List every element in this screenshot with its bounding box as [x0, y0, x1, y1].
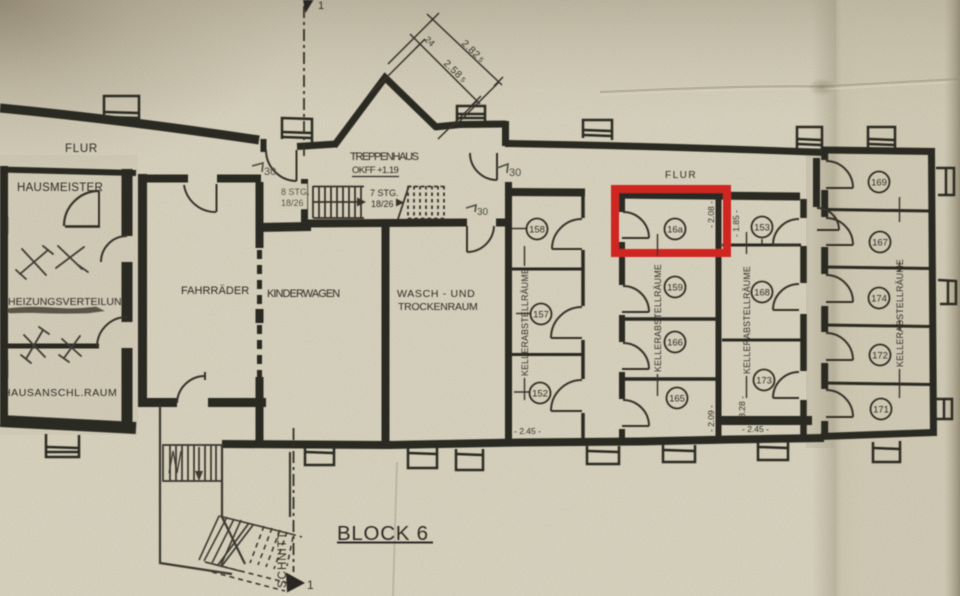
svg-text:158: 158 [529, 225, 545, 236]
svg-text:- 1.85 -: - 1.85 - [731, 210, 741, 237]
svg-text:152: 152 [532, 389, 548, 400]
svg-text:30: 30 [477, 207, 489, 218]
svg-text:18/26: 18/26 [281, 198, 304, 208]
svg-text:- 2.45 -: - 2.45 - [742, 424, 769, 434]
svg-text:KELLERABSTELLRÄUME: KELLERABSTELLRÄUME [742, 266, 752, 374]
svg-text:KELLERABSTELLRÄUME: KELLERABSTELLRÄUME [895, 259, 905, 367]
svg-text:- 2.09 -: - 2.09 - [706, 405, 716, 432]
svg-text:HAUSANSCHL.RAUM: HAUSANSCHL.RAUM [3, 387, 117, 399]
svg-text:FLUR: FLUR [665, 170, 697, 181]
svg-text:169: 169 [871, 178, 887, 189]
svg-text:174: 174 [871, 294, 887, 305]
svg-text:167: 167 [872, 238, 888, 249]
svg-text:WASCH - UND: WASCH - UND [397, 288, 475, 300]
svg-text:173: 173 [756, 376, 772, 387]
svg-text:HEIZUNGSVERTEILUNG: HEIZUNGSVERTEILUNG [8, 296, 130, 308]
svg-text:FAHRRÄDER: FAHRRÄDER [181, 285, 250, 297]
svg-text:KELLERABSTELLRÄUME: KELLERABSTELLRÄUME [520, 268, 530, 376]
svg-text:OKFF +1.19: OKFF +1.19 [352, 165, 399, 176]
svg-text:KELLERABSTELLRÄUME: KELLERABSTELLRÄUME [653, 264, 663, 372]
svg-text:166: 166 [667, 338, 683, 349]
svg-text:159: 159 [667, 283, 683, 294]
svg-text:- 2.08 -: - 2.08 - [706, 201, 716, 228]
svg-text:SCHNITT: SCHNITT [277, 531, 289, 588]
svg-text:30: 30 [509, 167, 521, 179]
svg-text:30: 30 [264, 166, 276, 178]
svg-text:157: 157 [533, 310, 549, 321]
svg-text:7 STG.: 7 STG. [370, 188, 399, 198]
svg-text:1: 1 [307, 578, 314, 592]
svg-text:FLUR: FLUR [65, 143, 99, 155]
svg-text:172: 172 [872, 351, 888, 362]
svg-text:8 STG.: 8 STG. [281, 187, 310, 197]
svg-text:KINDERWAGEN: KINDERWAGEN [267, 288, 341, 300]
svg-text:- 2.45 -: - 2.45 - [514, 426, 541, 436]
svg-text:- 3.28 -: - 3.28 - [737, 396, 747, 423]
svg-text:HAUSMEISTER: HAUSMEISTER [17, 182, 104, 194]
svg-text:171: 171 [873, 405, 889, 416]
svg-text:16a: 16a [667, 225, 684, 236]
svg-text:18/26: 18/26 [371, 199, 394, 209]
svg-text:165: 165 [669, 394, 685, 405]
svg-text:TREPPENHAUS: TREPPENHAUS [350, 151, 420, 163]
svg-text:1: 1 [318, 0, 324, 12]
svg-text:TROCKENRAUM: TROCKENRAUM [398, 301, 478, 313]
svg-text:168: 168 [754, 288, 770, 299]
svg-text:153: 153 [754, 223, 770, 234]
